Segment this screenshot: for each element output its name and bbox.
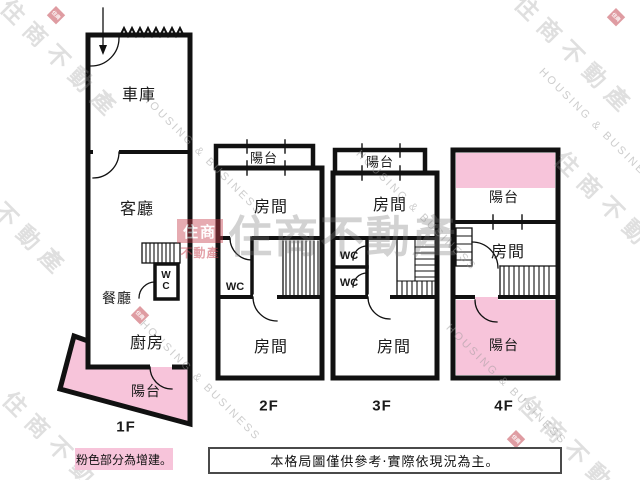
balcony-4f-top-addition — [456, 153, 555, 188]
room-label-room-3f-top: 房間 — [373, 191, 407, 215]
room-label-balcony-4f-top: 陽台 — [489, 187, 519, 207]
addition-note: 粉色部分為增建。 — [75, 448, 173, 470]
floorplan-image: 住商不動產 住商不動產 住商不動產 住商不動產 住商不動產 住商不動產 HOUS… — [0, 0, 640, 480]
disclaimer-note: 本格局圖僅供參考‧實際依現況為主。 — [208, 447, 562, 474]
garage-door-zigzag — [120, 28, 184, 36]
room-label-room-2f-top: 房間 — [254, 193, 288, 217]
room-label-balcony-3f: 陽台 — [366, 152, 394, 171]
room-label-wc-2f: WC — [226, 281, 244, 293]
room-label-garage: 車庫 — [122, 81, 156, 105]
room-label-living: 客廳 — [120, 195, 154, 219]
floorplan-drawing — [0, 0, 640, 480]
floor-label-1f: 1F — [116, 419, 136, 436]
room-label-balcony-1f: 陽台 — [131, 381, 161, 401]
floor-label-3f: 3F — [372, 398, 392, 415]
room-label-room-3f-bot: 房間 — [377, 333, 411, 357]
room-label-room-4f: 房間 — [491, 238, 525, 262]
room-label-wc-1f: WC — [161, 270, 172, 292]
room-label-room-2f-bot: 房間 — [254, 333, 288, 357]
room-label-balcony-2f: 陽台 — [250, 148, 278, 167]
room-label-kitchen: 廚房 — [130, 329, 164, 353]
room-label-dining: 餐廳 — [102, 288, 132, 308]
floor-label-4f: 4F — [494, 398, 514, 415]
room-label-wc-3f-upper: WC — [340, 250, 358, 262]
room-label-wc-3f-lower: WC — [340, 277, 358, 289]
room-label-balcony-4f-bot: 陽台 — [489, 335, 519, 355]
floor-label-2f: 2F — [259, 398, 279, 415]
